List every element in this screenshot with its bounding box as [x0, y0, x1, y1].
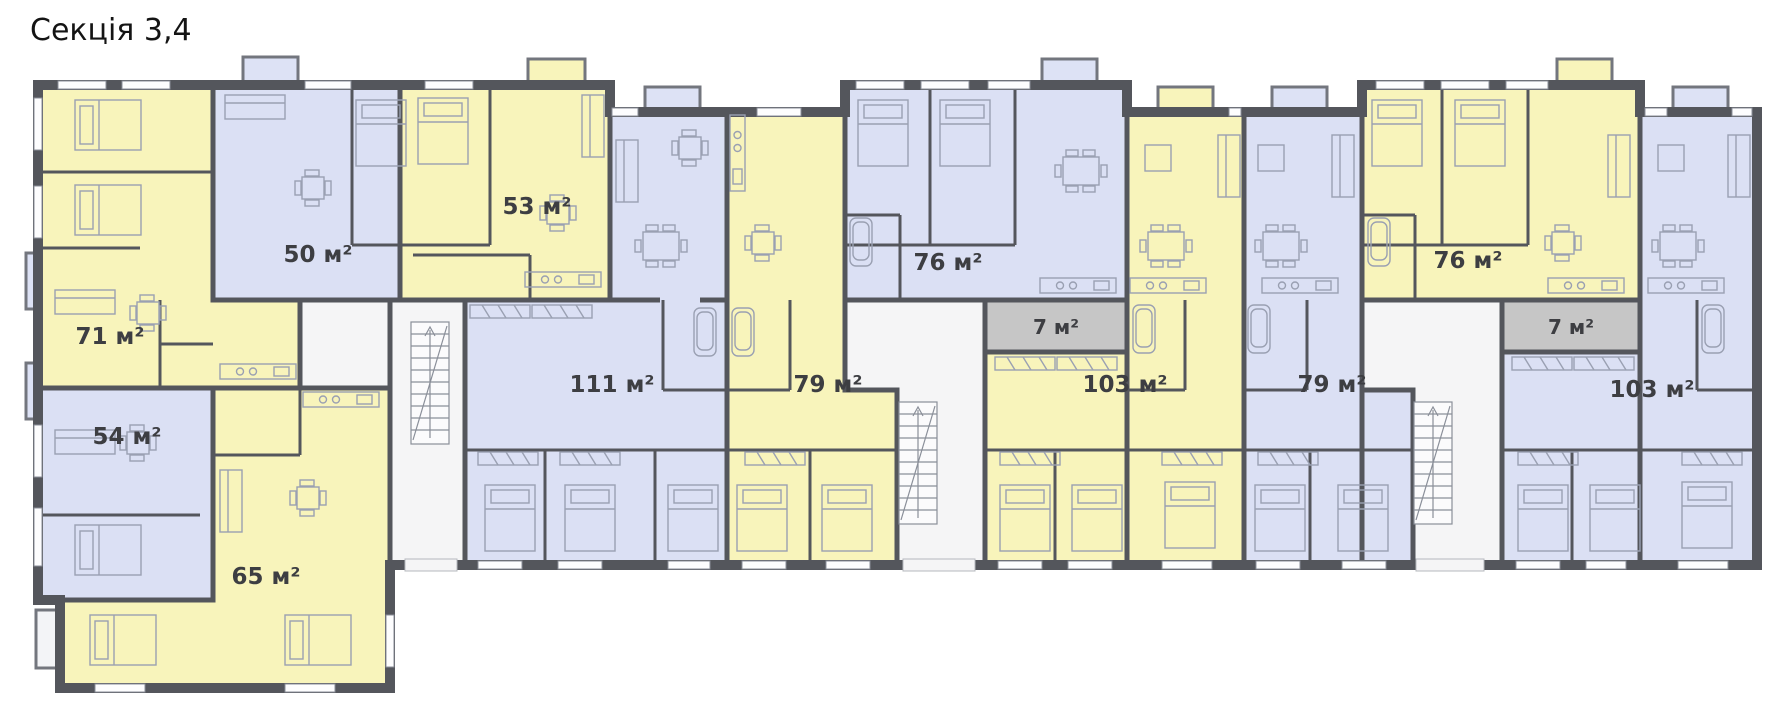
- entrance-door: [1416, 559, 1484, 571]
- apartment-region-53: [400, 85, 610, 300]
- area-label-79-right: 79 м²: [1298, 372, 1367, 398]
- area-label-7-left: 7 м²: [1033, 315, 1079, 339]
- staircase: [411, 322, 449, 444]
- balcony: [243, 57, 298, 83]
- area-label-53: 53 м²: [503, 194, 572, 220]
- area-label-71: 71 м²: [76, 324, 145, 350]
- area-label-111: 111 м²: [570, 372, 655, 398]
- area-label-7-right: 7 м²: [1548, 315, 1594, 339]
- balcony: [36, 610, 58, 668]
- entry-hall-left-block: [300, 300, 400, 388]
- staircase: [1414, 402, 1452, 524]
- area-label-65: 65 м²: [232, 564, 301, 590]
- staircase: [899, 402, 937, 524]
- area-label-103-left: 103 м²: [1083, 372, 1168, 398]
- area-label-103-right: 103 м²: [1610, 377, 1695, 403]
- entrance-door: [903, 559, 975, 571]
- area-label-50: 50 м²: [284, 242, 353, 268]
- apartment-region-54: [38, 388, 213, 600]
- area-label-76-right: 76 м²: [1434, 248, 1503, 274]
- entrance-door: [405, 559, 457, 571]
- area-label-76-left: 76 м²: [914, 250, 983, 276]
- area-label-79-left: 79 м²: [794, 372, 863, 398]
- plan-title: Секція 3,4: [30, 13, 192, 48]
- area-label-54: 54 м²: [93, 424, 162, 450]
- floor-plan-page: Секція 3,4 71 м² 50 м² 53 м² 54 м² 65 м²…: [0, 0, 1781, 724]
- floor-plan-canvas: Секція 3,4 71 м² 50 м² 53 м² 54 м² 65 м²…: [0, 0, 1781, 724]
